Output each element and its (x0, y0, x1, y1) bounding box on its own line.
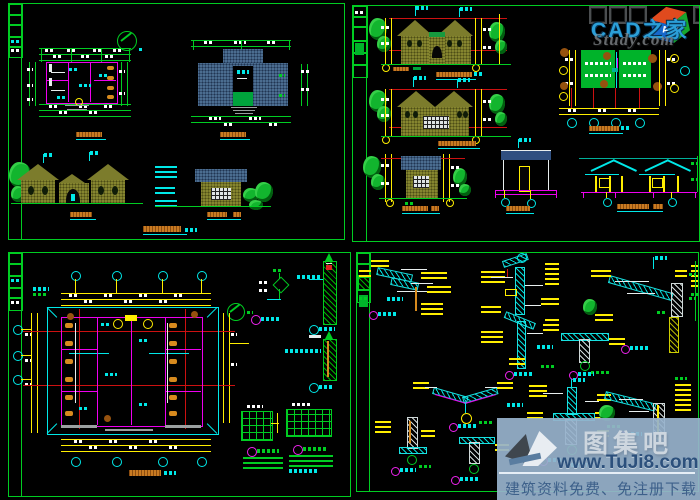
dimension-line (595, 176, 597, 192)
orange-fixture (65, 377, 73, 382)
dim-text-marks (11, 49, 19, 52)
cyan-label-cluster (155, 166, 177, 178)
wall-line (165, 317, 166, 425)
dim-text-marks (45, 49, 55, 52)
green-text-marks (303, 447, 327, 451)
cyan-text-marks (400, 468, 416, 472)
leader-line (615, 281, 649, 282)
dimension-line (279, 289, 280, 299)
yellow-label-cluster (609, 335, 625, 345)
leader-line (411, 283, 433, 284)
tree-symbol (648, 54, 657, 63)
plan-walls (61, 317, 203, 427)
cyan-text-marks (319, 327, 335, 331)
dim-text-marks (169, 446, 179, 449)
dim-text-marks (231, 333, 237, 336)
cad-sheet-collage: A D CAD之家 Study.com (0, 0, 700, 500)
orange-fixture (65, 411, 73, 416)
yellow-label-cluster (591, 267, 611, 277)
white-hatch-detail (671, 283, 683, 317)
window-opening (447, 40, 452, 47)
dimension-line (39, 60, 131, 61)
wall-line (653, 192, 654, 198)
dim-text-marks (269, 123, 277, 126)
axis-line (615, 88, 616, 108)
detail-tag-circle (449, 423, 458, 432)
cyan-text-marks (105, 373, 117, 376)
large-plan-title (129, 470, 161, 476)
dim-text-marks (25, 359, 31, 362)
dimension-line (279, 273, 280, 279)
wall-line (556, 190, 557, 198)
leader-line (51, 90, 65, 91)
yellow-label-cluster (543, 323, 559, 331)
yellow-label-cluster (595, 313, 613, 321)
green-text-marks (691, 178, 697, 181)
dim-text-marks (224, 123, 234, 126)
dim-text-marks (109, 440, 119, 443)
annotation-line (402, 213, 440, 214)
dim-text-marks (292, 403, 310, 406)
wall-line (61, 349, 97, 350)
annotation-line (436, 79, 476, 80)
dimension-line (385, 18, 386, 64)
tree-symbol (191, 311, 198, 318)
annotation-line (76, 139, 106, 140)
dimension-line (530, 190, 531, 199)
green-text-marks (33, 293, 47, 296)
cad-home-ghost-text: Study.com (593, 30, 675, 50)
cyan-text-marks (630, 346, 648, 350)
dimension-line (11, 203, 143, 204)
cyan-text-marks (33, 287, 49, 291)
green-fill (413, 67, 421, 70)
dimension-line (116, 279, 117, 293)
cyan-text-marks (319, 385, 333, 389)
detail-tag-circle (247, 447, 257, 457)
olive-wall-fill (401, 36, 431, 64)
dimension-line (39, 116, 131, 117)
dimension-line (271, 423, 279, 424)
dimension-line (61, 293, 211, 294)
window-opening (407, 40, 412, 47)
side-elevation-title (207, 212, 227, 217)
window-opening (413, 111, 418, 118)
dimension-line (201, 279, 202, 293)
wall-line (165, 391, 201, 392)
leader-line (548, 160, 549, 190)
olive-wall-fill (21, 180, 55, 203)
axis-line (389, 89, 507, 90)
dimension-line (21, 379, 31, 380)
cyan-text-marks (11, 40, 19, 43)
annotation-line (585, 174, 619, 175)
yellow-label-cluster (375, 421, 391, 433)
orange-fixture (409, 421, 411, 443)
dim-text-marks (598, 109, 608, 112)
grid-bubble (567, 118, 577, 128)
yellow-marker-circle (446, 199, 454, 207)
dimension-line (621, 176, 623, 192)
roof-plan-title (220, 132, 246, 137)
axis-line (507, 269, 508, 277)
section-window (599, 178, 610, 188)
dim-text-marks (628, 109, 638, 112)
dimension-line (475, 89, 476, 136)
green-text-marks (279, 74, 285, 77)
dim-text-marks (451, 166, 459, 169)
step-line (233, 110, 255, 111)
window-grid-2 (286, 409, 332, 437)
leader-line (543, 393, 563, 394)
cyan-text-marks (460, 477, 478, 481)
leader-line (425, 387, 437, 388)
dimension-line (449, 154, 450, 202)
grid-bubble (309, 383, 319, 393)
cyan-text-marks (537, 345, 553, 349)
cyan-text-marks (514, 372, 532, 376)
cyan-label-cluster (155, 184, 175, 194)
dim-text-marks (129, 446, 139, 449)
cyan-text-marks (237, 70, 249, 74)
annotation-line (639, 174, 675, 175)
detail-tag-circle (251, 315, 261, 325)
roof-gable (87, 164, 129, 180)
dimension-line (391, 89, 392, 136)
yellow-marker-circle (382, 136, 390, 144)
drawing-title-hatch (393, 67, 409, 71)
tuji8-logo (503, 426, 557, 472)
yellow-label-cluster (545, 263, 559, 285)
green-text-marks (657, 311, 667, 314)
cyan-text-marks (621, 126, 631, 130)
green-marker-circle (407, 455, 417, 465)
axis-line (639, 88, 640, 108)
green-text-marks (479, 421, 493, 424)
green-text-marks (675, 377, 687, 380)
green-text-marks (247, 311, 253, 314)
yellow-label-cluster (509, 357, 525, 365)
window-opening (98, 186, 104, 195)
grid-bubble (13, 375, 23, 385)
step-line (235, 113, 253, 114)
lattice-window (211, 188, 231, 200)
cyan-text-marks (79, 407, 89, 410)
yellow-label-cluster (421, 269, 447, 279)
window-opening (417, 40, 422, 47)
dimension-line (21, 253, 22, 496)
dim-text-marks (231, 363, 237, 366)
leader-line (49, 64, 52, 72)
annotation-line (465, 403, 466, 413)
dimension-line (391, 154, 392, 202)
green-hatch-detail (323, 339, 337, 381)
grid-bubble (197, 457, 207, 467)
tree-symbol (255, 182, 273, 202)
roof-gable (325, 253, 333, 261)
dim-text-marks (483, 100, 491, 103)
orange-fixture (169, 377, 177, 382)
dimension-line (41, 48, 42, 62)
lattice-window (423, 116, 449, 129)
leader-line (503, 160, 504, 190)
green-fill (355, 43, 364, 55)
green-text-marks (691, 162, 697, 165)
cyan-text-marks (101, 323, 111, 326)
green-text-marks (405, 202, 415, 205)
dim-text-marks (149, 440, 159, 443)
sheet-floor-plan-large (8, 252, 351, 497)
grid-bubble (71, 271, 81, 281)
grid-bubble (517, 253, 527, 263)
green-label-cluster (289, 455, 333, 467)
yellow-label-cluster (421, 301, 443, 315)
dimension-line (129, 48, 130, 62)
roof-gable (397, 91, 435, 107)
dim-text-marks (69, 294, 79, 297)
green-text-marks (359, 297, 371, 300)
dimension-line (101, 48, 102, 62)
cyan-text-marks (378, 312, 398, 316)
window-opening (457, 40, 462, 47)
window-grid-1 (241, 411, 273, 441)
annotation-line (571, 379, 572, 387)
section2-title (617, 204, 649, 209)
dim-text-marks (565, 58, 573, 61)
grid-bubble (71, 457, 81, 467)
cyan-text-marks (139, 339, 149, 342)
dim-text-marks (483, 118, 491, 121)
dim-text-marks (267, 41, 277, 44)
wall-line (695, 192, 696, 198)
grid-bubble (13, 351, 23, 361)
annotation-line (653, 257, 654, 269)
yellow-fill (125, 315, 137, 321)
green-text-marks (689, 273, 695, 276)
axis-line (593, 88, 594, 108)
annotation-line (71, 194, 75, 201)
dimension-line (481, 89, 482, 136)
cyan-text-marks (387, 297, 403, 301)
orange-fixture (107, 86, 114, 90)
yellow-label-cluster (371, 257, 389, 267)
leader-line (326, 263, 332, 264)
tree-symbol (560, 48, 569, 57)
roof-gable (435, 91, 473, 107)
leader-line (527, 333, 543, 334)
annotation-line (667, 159, 691, 172)
drawing-title-hatch (653, 204, 663, 209)
step-line (165, 425, 201, 428)
dimension-line (35, 62, 36, 106)
section1-title (506, 206, 530, 211)
window-opening (28, 186, 34, 195)
dimension-line (659, 50, 660, 106)
yellow-label-cluster (675, 269, 687, 277)
grid-bubble (158, 457, 168, 467)
detail-tag-circle (293, 445, 303, 455)
dimension-line (61, 305, 211, 306)
lattice-window (413, 176, 429, 188)
dim-text-marks (11, 301, 19, 304)
dim-text-marks (381, 42, 389, 45)
cyan-text-marks (458, 424, 476, 428)
dim-text-marks (27, 98, 33, 101)
dim-text-marks (104, 105, 112, 108)
dim-text-marks (139, 294, 149, 297)
leader-line (167, 323, 168, 403)
annotation-line (267, 299, 281, 300)
yellow-marker-circle (559, 66, 568, 75)
cyan-text-marks (164, 471, 176, 475)
dimension-line (75, 279, 76, 293)
dimension-line (665, 50, 666, 106)
leader-line (491, 277, 513, 278)
white-hatch-detail (469, 442, 480, 464)
orange-fixture (169, 341, 177, 346)
sheet-elevations-sections: A D CAD之家 Study.com (352, 5, 700, 242)
green-label-cluster (243, 457, 283, 469)
tree-symbol (495, 112, 507, 126)
dim-text-marks (25, 333, 31, 336)
dimension-line (391, 18, 392, 64)
tree-symbol (489, 94, 505, 114)
dimension-line (71, 48, 72, 62)
dimension-line (21, 355, 31, 356)
orange-fixture (107, 95, 114, 99)
dimension-line (366, 6, 367, 241)
tree-symbol (249, 200, 263, 210)
yellow-label-cluster (675, 383, 691, 411)
leader-line (237, 78, 247, 79)
annotation-line (645, 159, 669, 172)
section-window (652, 178, 663, 188)
dimension-line (663, 176, 665, 192)
roof-gable (59, 174, 85, 183)
watermark-divider (499, 472, 695, 474)
wall-line (583, 192, 584, 198)
dimension-line (223, 313, 224, 423)
cyan-text-marks (460, 7, 472, 11)
dimension-line (697, 156, 698, 192)
side-elevation2-title (402, 206, 428, 211)
cyan-text-marks (289, 469, 319, 473)
leader-line (75, 323, 76, 403)
dimension-line (193, 40, 194, 50)
dim-text-marks (247, 405, 263, 408)
dim-text-marks (259, 289, 267, 292)
orange-fixture (65, 341, 73, 346)
annotation-line (617, 211, 663, 212)
step-line (61, 425, 97, 428)
yellow-label-cluster (529, 385, 547, 397)
tree-symbol (560, 82, 568, 90)
yellow-label-cluster (497, 379, 513, 389)
slate-roof-fill (223, 49, 263, 63)
dimension-line (191, 116, 291, 117)
dimension-line (289, 40, 290, 50)
dim-text-marks (381, 182, 389, 185)
wall-line (90, 62, 91, 102)
window-opening (463, 111, 468, 118)
dimension-line (385, 89, 386, 136)
dim-text-marks (119, 70, 125, 73)
cyan-text-marks (99, 74, 107, 77)
tuji8-tagline: 建筑资料免费、免注册下载 (505, 478, 697, 499)
cyan-hatch-detail (567, 387, 577, 415)
grid-bubble (668, 198, 677, 207)
dimension-line (649, 176, 651, 192)
dim-text-marks (381, 164, 389, 167)
dim-text-marks (585, 74, 611, 77)
dim-text-marks (568, 109, 578, 112)
annotation-line (220, 139, 250, 140)
dimension-line (127, 62, 128, 106)
cyan-text-marks (416, 6, 428, 10)
annotation-line (591, 159, 615, 172)
tree-symbol (104, 415, 111, 422)
dim-text-marks (74, 440, 84, 443)
leader-line (397, 291, 427, 292)
green-marker-circle (469, 464, 479, 474)
annotation-line (613, 159, 637, 172)
cyan-text-marks (285, 349, 321, 353)
cyan-text-marks (507, 403, 523, 407)
dimension-line (381, 136, 511, 137)
cyan-text-marks (44, 153, 54, 157)
teal-fill (579, 158, 697, 159)
wall-line (61, 391, 97, 392)
cyan-text-marks (519, 138, 531, 142)
dim-text-marks (81, 55, 91, 58)
olive-wall-fill (441, 36, 471, 64)
dim-text-marks (234, 41, 246, 44)
dim-text-marks (84, 300, 94, 303)
dimension-line (499, 14, 500, 64)
sheet-plans-elevations (8, 3, 345, 240)
ghost-glyph (693, 6, 700, 24)
green-text-marks (257, 449, 279, 453)
dim-text-marks (89, 446, 99, 449)
cyan-text-marks (79, 84, 91, 87)
dim-text-marks (49, 105, 59, 108)
dim-text-marks (53, 55, 61, 58)
dim-text-marks (104, 294, 114, 297)
floor-plan-title (76, 132, 102, 137)
front-elevation-title (70, 212, 92, 217)
cyan-text-marks (458, 78, 470, 82)
dimension-line (229, 304, 240, 313)
dim-text-marks (249, 117, 261, 120)
green-text-marks (419, 465, 431, 468)
section-door (519, 166, 530, 192)
annotation-line (143, 234, 187, 235)
detail-tag-circle (391, 467, 400, 476)
window-opening (405, 111, 410, 118)
dimension-line (504, 190, 505, 198)
wall-line (131, 317, 132, 425)
cyan-text-marks (185, 228, 197, 232)
tree-symbol (603, 52, 611, 60)
cyan-hatch-detail (608, 275, 674, 301)
leader-line (49, 78, 52, 86)
detail-tag-circle (621, 345, 630, 354)
yellow-label-cluster (481, 303, 501, 313)
orange-fixture (65, 323, 73, 328)
step-line (231, 107, 257, 108)
roof-gable (397, 20, 433, 36)
dimension-line (481, 18, 482, 64)
